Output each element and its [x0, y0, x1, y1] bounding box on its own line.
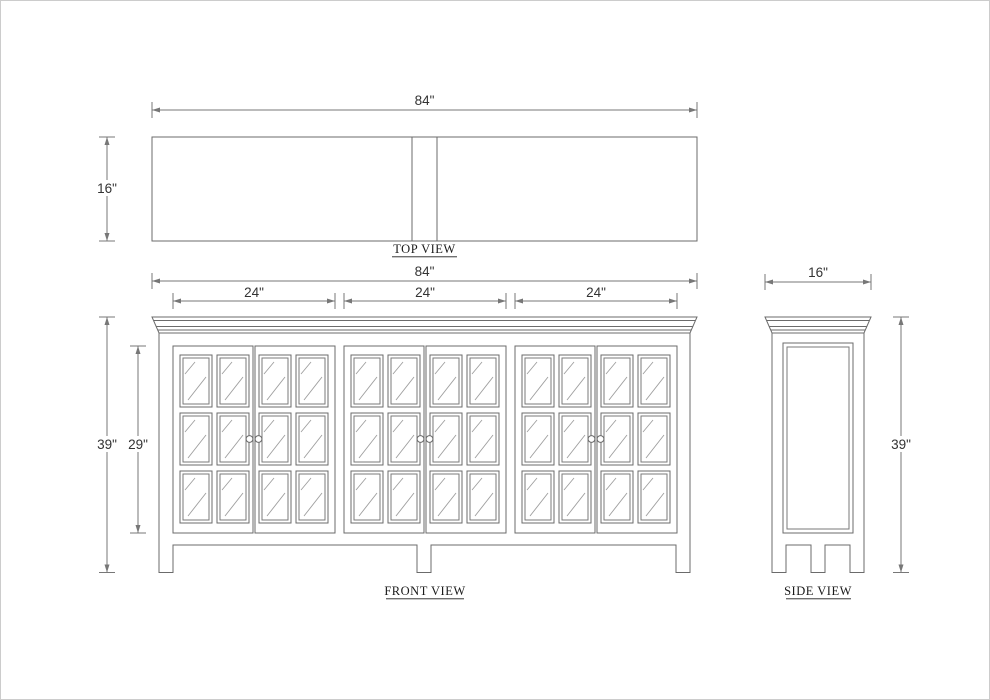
top-view-depth-dimension: 16"	[97, 181, 117, 196]
front-view-height-dimension: 39"	[97, 437, 117, 452]
furniture-dimension-drawing: 84" 16" 84" 24" 24" 24" 39" 29" 16" 39" …	[0, 0, 990, 700]
top-view-width-dimension: 84"	[415, 93, 435, 108]
side-view-label: SIDE VIEW	[784, 584, 852, 598]
front-view-label: FRONT VIEW	[384, 584, 465, 598]
top-view-label: TOP VIEW	[393, 242, 455, 256]
front-view-width-dimension: 84"	[415, 264, 435, 279]
cabinet-three-view-drawing: 84" 16" 84" 24" 24" 24" 39" 29" 16" 39" …	[0, 0, 990, 700]
front-view-section-dimension-1: 24"	[244, 285, 264, 300]
side-view-depth-dimension: 16"	[808, 265, 828, 280]
front-view-section-dimension-2: 24"	[415, 285, 435, 300]
front-view-door-height-dimension: 29"	[128, 437, 148, 452]
front-view-section-dimension-3: 24"	[586, 285, 606, 300]
side-view-height-dimension: 39"	[891, 437, 911, 452]
